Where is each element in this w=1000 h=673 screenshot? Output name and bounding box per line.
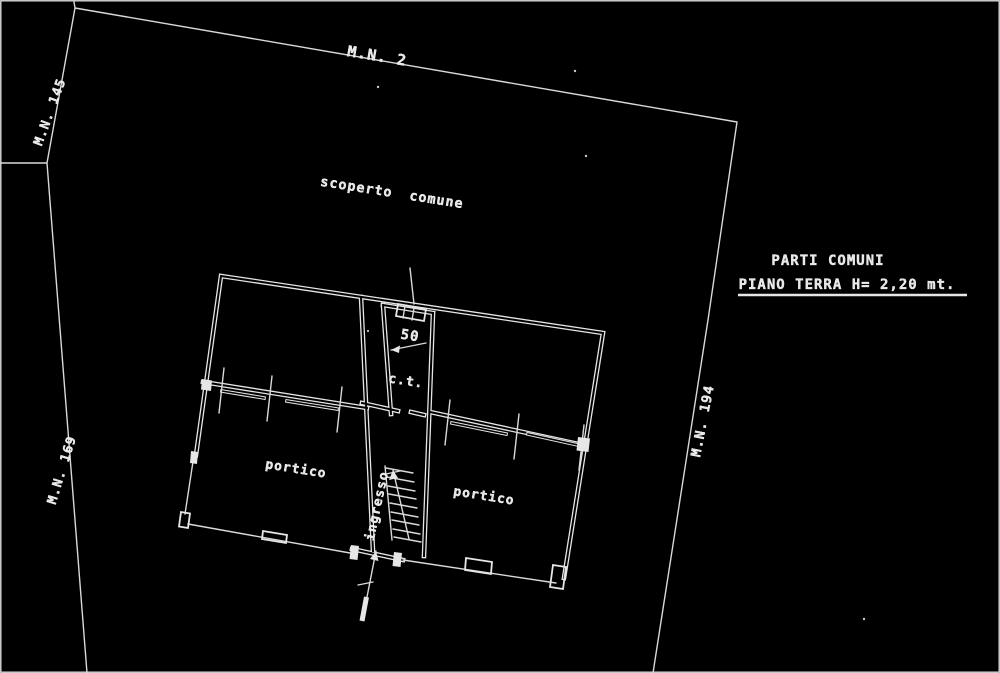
plan-background: [0, 0, 1000, 673]
legend-line1: PARTI COMUNI: [771, 253, 884, 269]
cadastral-floor-plan: 50 portico portico c.t. ingresso M.N. 2 …: [0, 0, 1000, 673]
legend-line2: PIANO TERRA H= 2,20 mt.: [739, 277, 956, 293]
dimension-50-label: 50: [399, 327, 420, 346]
